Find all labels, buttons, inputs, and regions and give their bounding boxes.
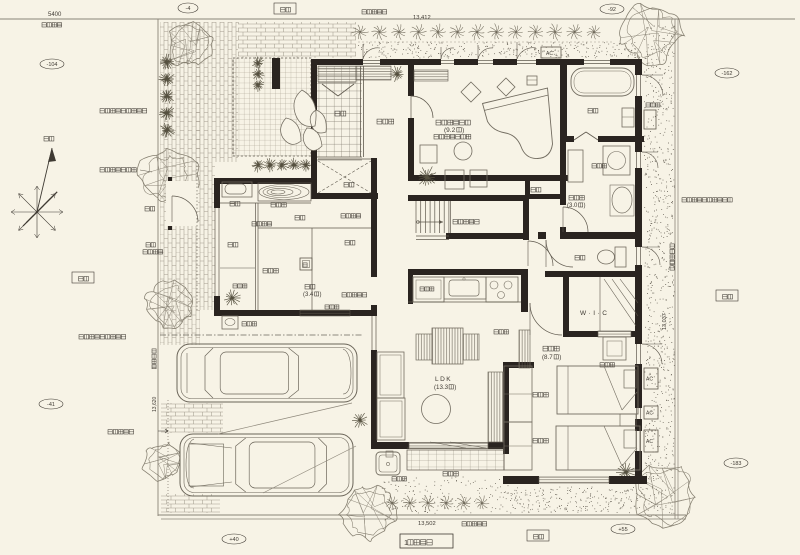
svg-text:): ) [320, 292, 322, 298]
svg-text:13,502: 13,502 [418, 521, 436, 527]
svg-text:): ) [462, 127, 464, 134]
svg-text:AC: AC [646, 411, 653, 417]
svg-text:): ) [584, 203, 586, 209]
svg-text:-92: -92 [608, 7, 616, 13]
svg-text:13,037: 13,037 [662, 313, 668, 330]
svg-text:-162: -162 [721, 71, 732, 77]
svg-text:): ) [559, 354, 561, 361]
svg-text:5400: 5400 [48, 12, 62, 18]
svg-text:AC: AC [646, 377, 653, 383]
svg-text:13,412: 13,412 [413, 15, 431, 21]
svg-text:13,620: 13,620 [152, 396, 158, 412]
svg-text:AC: AC [546, 51, 553, 57]
svg-text:-104: -104 [46, 62, 57, 68]
svg-text:LDK: LDK [435, 376, 452, 383]
svg-text:-183: -183 [730, 461, 741, 467]
svg-text:): ) [454, 384, 456, 391]
svg-text:(13.3: (13.3 [434, 384, 449, 391]
svg-text:(8.7: (8.7 [542, 354, 553, 361]
svg-text:+55: +55 [618, 527, 627, 533]
svg-text:+40: +40 [229, 537, 238, 543]
svg-text:AC: AC [646, 439, 653, 445]
svg-text:-4: -4 [186, 6, 191, 12]
svg-text:(3.0: (3.0 [567, 203, 578, 209]
svg-text:(3.4: (3.4 [303, 292, 314, 298]
svg-text:-41: -41 [47, 402, 55, 408]
svg-text:W·I·C: W·I·C [580, 310, 609, 317]
svg-text:(9.2: (9.2 [444, 127, 456, 134]
